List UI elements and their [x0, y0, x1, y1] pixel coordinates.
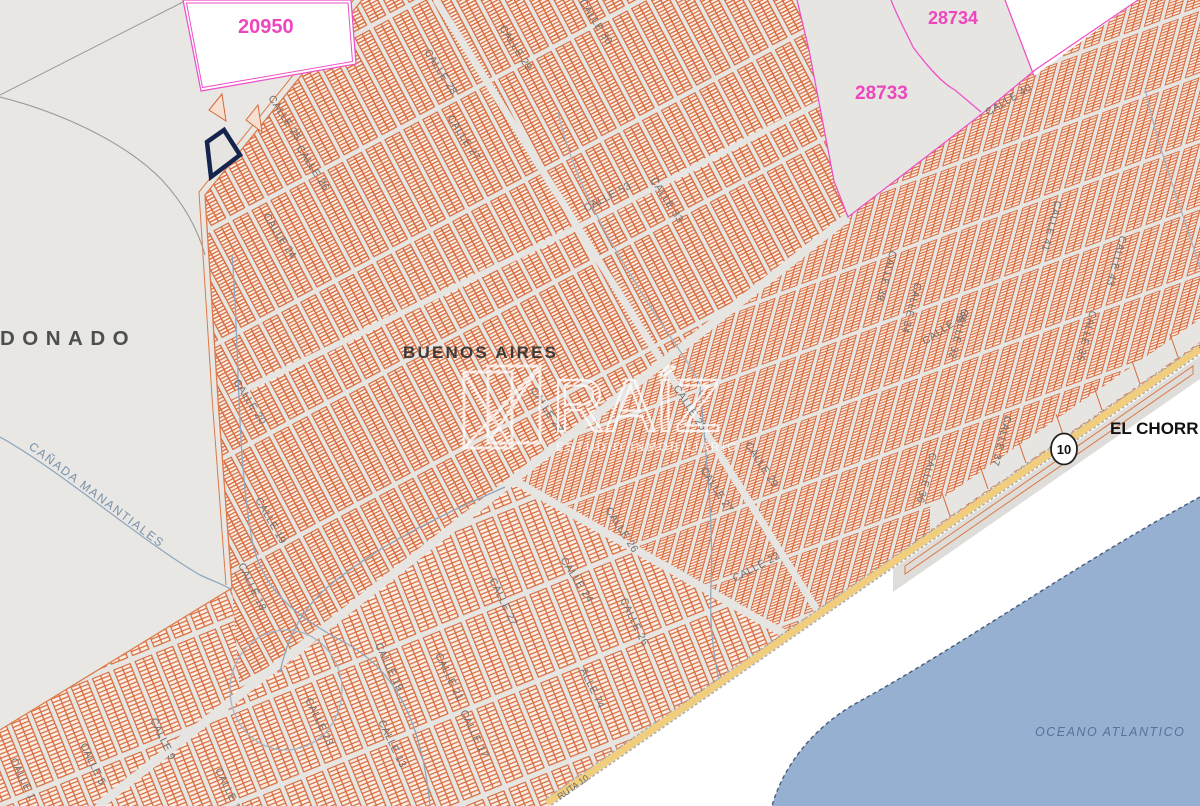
svg-text:ESTUDIO INMOBILIARIO: ESTUDIO INMOBILIARIO [556, 440, 739, 454]
svg-text:OCEANO ATLANTICO: OCEANO ATLANTICO [1035, 725, 1185, 739]
svg-text:RAÍZ: RAÍZ [552, 364, 721, 447]
svg-text:28733: 28733 [855, 83, 908, 104]
svg-text:EL CHORR: EL CHORR [1110, 419, 1198, 438]
svg-text:28734: 28734 [928, 8, 978, 28]
svg-text:20950: 20950 [238, 16, 294, 38]
svg-text:BUENOS AIRES: BUENOS AIRES [403, 343, 558, 362]
svg-text:DONADO: DONADO [0, 327, 136, 350]
svg-text:10: 10 [1057, 442, 1071, 457]
